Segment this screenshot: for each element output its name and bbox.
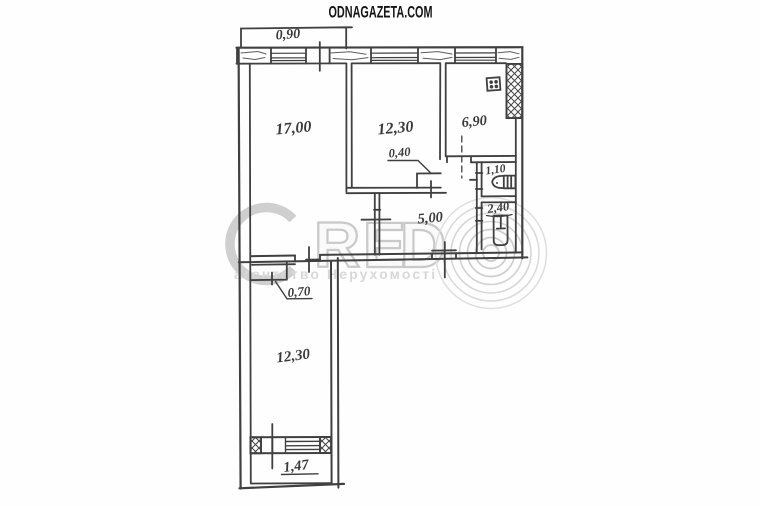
svg-text:12,30: 12,30 [276, 346, 312, 366]
svg-text:12,30: 12,30 [377, 118, 414, 138]
svg-text:1,47: 1,47 [283, 457, 311, 476]
svg-text:6,90: 6,90 [461, 113, 488, 131]
svg-text:0,40: 0,40 [388, 145, 412, 161]
svg-text:0,90: 0,90 [275, 27, 300, 44]
svg-text:17,00: 17,00 [275, 118, 312, 138]
svg-text:5,00: 5,00 [417, 209, 444, 227]
svg-text:2,40: 2,40 [485, 199, 510, 216]
svg-text:0,70: 0,70 [287, 283, 311, 300]
svg-text:ODNAGAZETA.COM: ODNAGAZETA.COM [329, 4, 433, 22]
